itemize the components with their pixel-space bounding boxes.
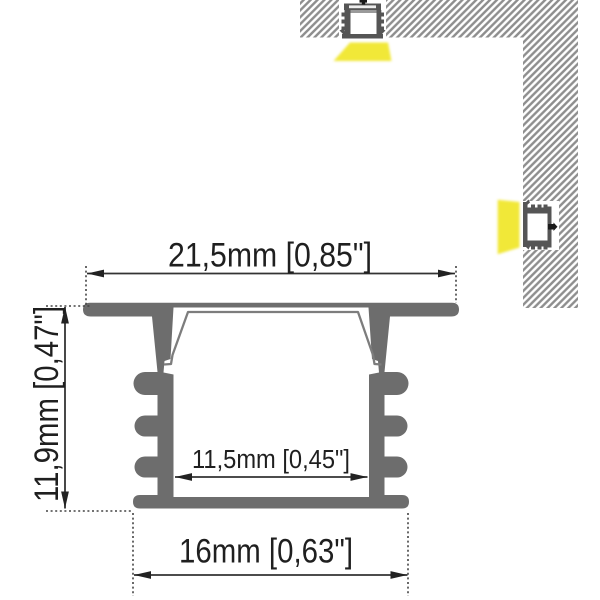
- svg-text:11,9mm [0,47"]: 11,9mm [0,47"]: [28, 306, 66, 502]
- svg-text:21,5mm [0,85"]: 21,5mm [0,85"]: [168, 237, 372, 275]
- svg-text:11,5mm [0,45"]: 11,5mm [0,45"]: [192, 446, 350, 474]
- svg-text:16mm [0,63"]: 16mm [0,63"]: [179, 533, 353, 571]
